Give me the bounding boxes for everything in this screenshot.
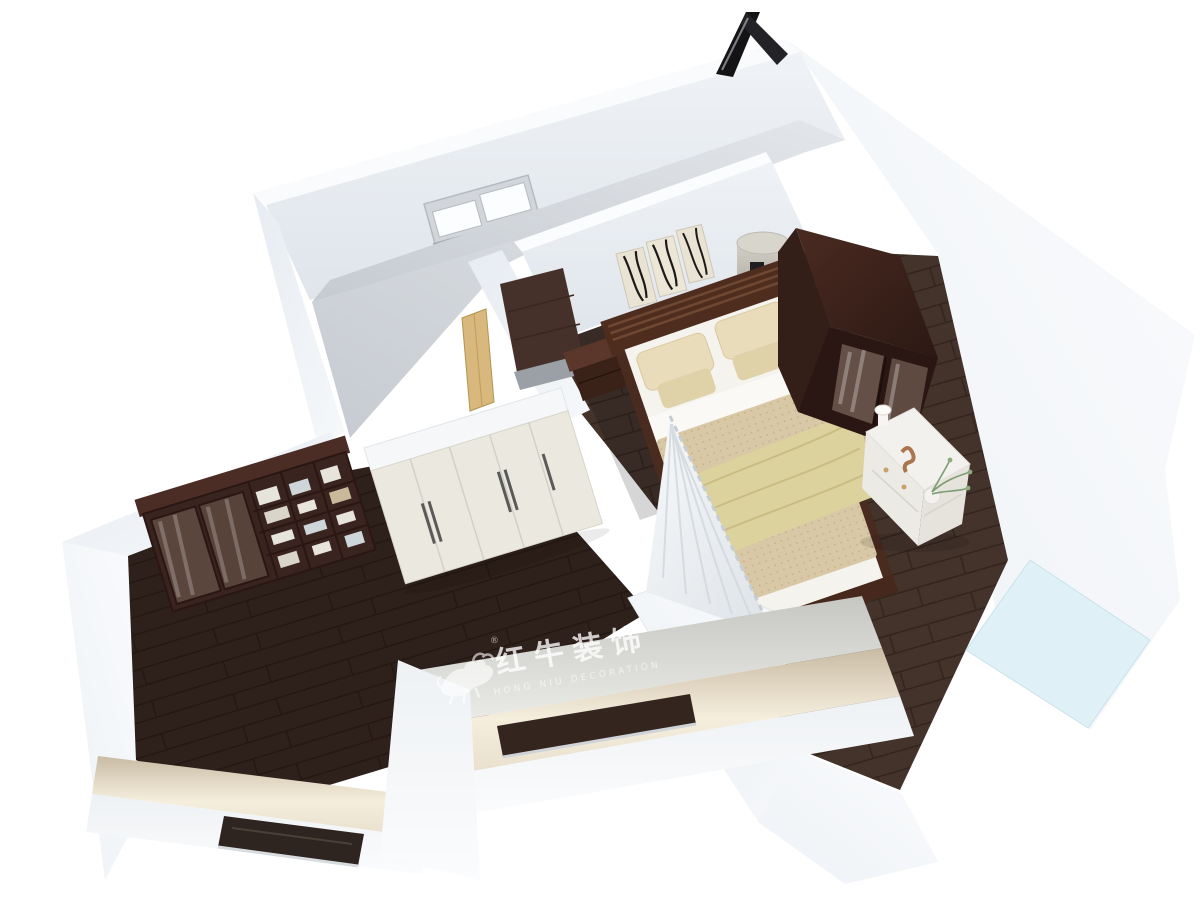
lamp-shade [875,405,891,415]
leaf [968,470,973,475]
corridor-south-wall [758,750,938,884]
dresser-knob [902,485,907,490]
floorplan-3d-render: ® 红牛装饰 HONG NIU DECORATION [0,0,1200,900]
leaf [966,486,971,491]
leaf [948,458,953,463]
dresser-knob [884,468,889,473]
render-canvas: ® 红牛装饰 HONG NIU DECORATION [0,0,1200,900]
